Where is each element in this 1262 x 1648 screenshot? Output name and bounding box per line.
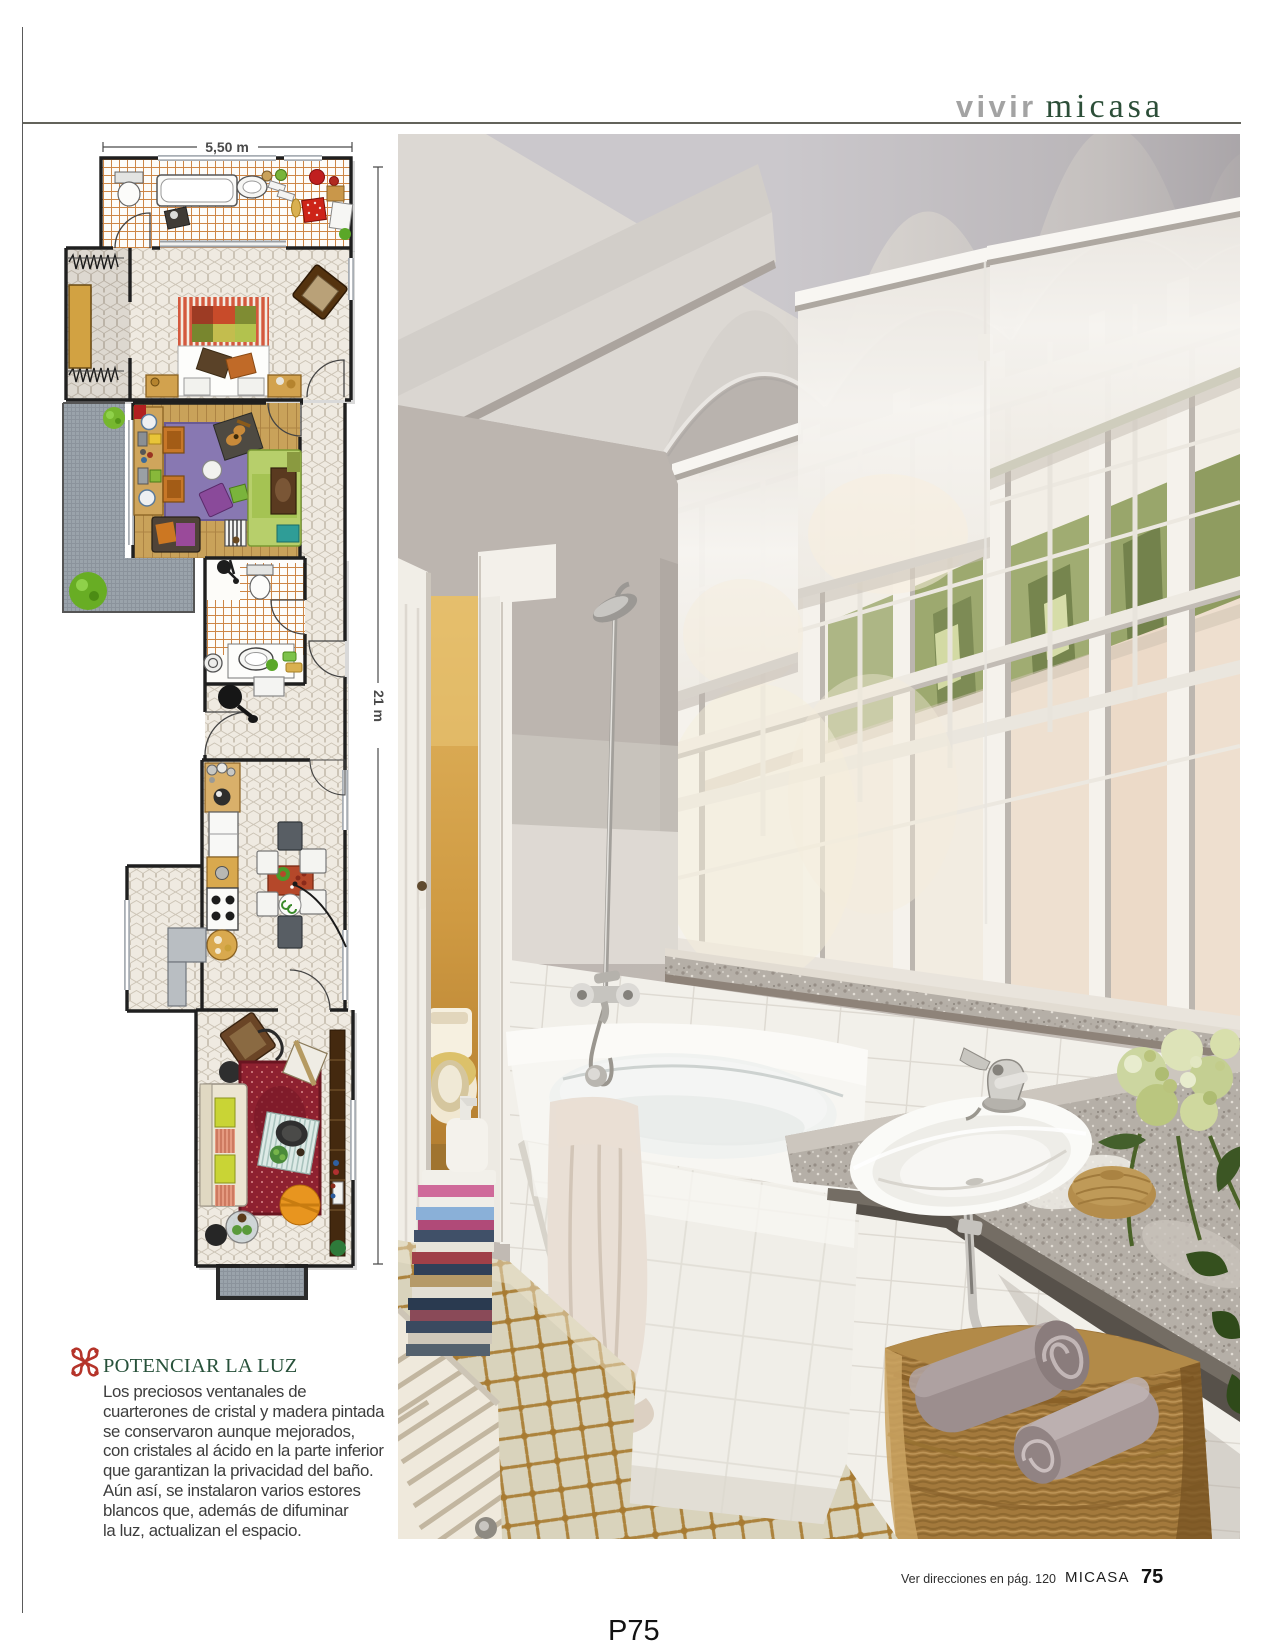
svg-text:5,50 m: 5,50 m xyxy=(205,139,249,155)
svg-text:21 m: 21 m xyxy=(371,690,387,722)
